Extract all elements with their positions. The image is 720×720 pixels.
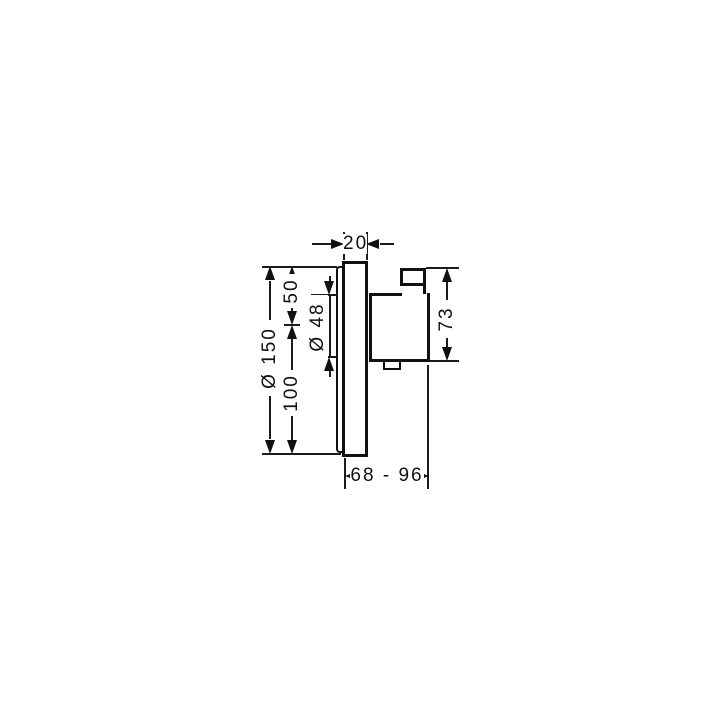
escutcheon-plate [342, 261, 368, 457]
dim-73-arrow-bottom [442, 347, 452, 361]
dimension-drawing: 20 Ø 150 50 100 Ø 48 73 68 - 96 [0, 0, 720, 720]
dim-73-label: 73 [437, 301, 457, 337]
handle-right-edge-segment [423, 285, 426, 294]
dim-100-arrow-bottom [287, 440, 297, 454]
dim-150-arrow-bottom [265, 440, 275, 454]
dim-48-line [329, 295, 331, 357]
dim-100-arrow-top [287, 325, 297, 339]
dim-73-line-lower [446, 338, 448, 347]
bottom-stop-tab [383, 360, 401, 370]
dim-20-line-right [380, 243, 394, 245]
dim-20-label: 20 [343, 234, 367, 254]
dim-20-line-left [312, 243, 331, 245]
dim-48-arrow-top [324, 281, 334, 295]
dim-150-label: Ø 150 [260, 321, 280, 395]
dim-6896-label: 68 - 96 [350, 466, 424, 486]
valve-body-top-edge [369, 293, 402, 296]
dim-48-label: Ø 48 [308, 295, 328, 359]
dim-150-arrow-top [265, 266, 275, 280]
dim-150-line-upper [269, 281, 271, 320]
dim-100-line-upper [291, 338, 293, 370]
dim-73-line-upper [446, 282, 448, 300]
dim-50-label: 50 [282, 274, 302, 308]
dim-50-arrow-bottom [287, 311, 297, 325]
dim-48-leader-bottom [329, 370, 331, 377]
dim-100-line-lower [291, 416, 293, 440]
dim-100-label: 100 [282, 371, 302, 415]
dim-73-arrow-top [442, 268, 452, 282]
dim-48-arrow-bottom [324, 357, 334, 371]
valve-body [369, 293, 430, 362]
dim-150-line-lower [269, 396, 271, 439]
